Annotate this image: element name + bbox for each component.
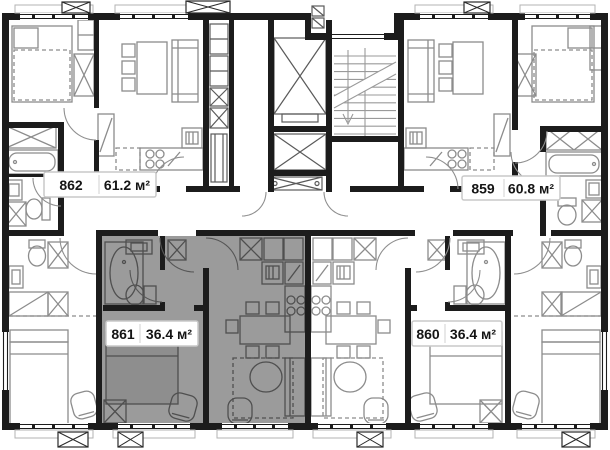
stove-icon <box>312 296 330 315</box>
window <box>2 332 9 390</box>
armchair-icon <box>69 389 99 420</box>
bed-icon <box>542 330 600 424</box>
dining-table-icon <box>326 302 390 358</box>
coffee-table-icon <box>323 358 383 418</box>
unit-label-862[interactable]: 862 61.2 м² <box>44 172 156 197</box>
door-arc <box>324 192 348 216</box>
door-arc <box>64 108 96 140</box>
toilet-icon <box>454 285 484 305</box>
unit-label-861[interactable]: 861 36.4 м² <box>106 321 198 346</box>
unit-area: 36.4 м² <box>450 326 496 342</box>
sink-icon <box>586 180 602 198</box>
washer-icon <box>582 200 602 222</box>
kitchen-cabinets-icon <box>313 238 352 260</box>
stairs-icon <box>334 48 396 136</box>
vent-shaft-icon <box>58 432 88 447</box>
sofa-icon <box>408 40 434 102</box>
window <box>420 13 488 20</box>
wardrobe-icon <box>74 54 94 96</box>
fridge-icon <box>182 128 202 148</box>
window <box>222 423 288 430</box>
wardrobe-icon <box>354 238 376 260</box>
unit-number: 860 <box>416 326 440 342</box>
window <box>522 423 590 430</box>
unit-label-860[interactable]: 860 36.4 м² <box>412 321 502 346</box>
unit-area: 60.8 м² <box>508 181 554 197</box>
armchair-icon <box>334 362 366 392</box>
vent-shaft-icon <box>118 432 143 447</box>
bed-icon <box>10 330 68 424</box>
bed-icon <box>12 26 72 102</box>
door-arc <box>376 238 408 270</box>
vent-shaft-icon <box>562 432 590 447</box>
window <box>120 13 188 20</box>
unit-number: 862 <box>59 177 83 193</box>
elevator-icon <box>274 38 326 122</box>
window <box>420 423 488 430</box>
sink-icon <box>587 266 601 288</box>
walls <box>2 13 608 430</box>
vent-shaft-icon <box>357 432 383 447</box>
floor-plan: 862 61.2 м² 859 60.8 м² 861 36.4 м² 860 … <box>0 0 610 450</box>
kitchen-counter-icon <box>404 114 510 170</box>
wardrobe-icon <box>542 242 562 316</box>
vent-shaft-icon <box>464 2 490 13</box>
apartment-far-left[interactable] <box>9 240 99 424</box>
window <box>318 423 386 430</box>
lobby-bench-icon <box>270 177 322 190</box>
window <box>525 13 590 20</box>
linen-closet-icon <box>6 126 56 148</box>
unit-label-859[interactable]: 859 60.8 м² <box>462 176 560 200</box>
stove-icon <box>146 150 164 168</box>
stove-icon <box>448 150 466 168</box>
storage-icon <box>561 292 601 316</box>
chair-icon <box>364 398 388 424</box>
wardrobe-icon <box>48 242 68 316</box>
storage-icon <box>9 292 48 316</box>
bathtub-icon <box>546 152 602 176</box>
door-arc <box>242 192 266 216</box>
vent-shaft-icon <box>312 6 324 28</box>
elevator-icon <box>274 134 326 170</box>
apartment-far-right[interactable] <box>511 240 601 424</box>
unit-number: 859 <box>471 181 495 197</box>
toilet-icon <box>565 240 582 266</box>
window <box>118 423 190 430</box>
toilet-icon <box>558 198 576 225</box>
dresser-icon <box>78 20 94 50</box>
washer-icon <box>428 240 446 260</box>
dining-table-icon <box>122 42 167 94</box>
bed-icon <box>532 26 594 102</box>
unit-area: 36.4 м² <box>146 326 192 342</box>
dining-table-icon <box>439 42 483 94</box>
unit-area: 61.2 м² <box>104 177 150 193</box>
sofa-icon <box>172 40 198 102</box>
floor-plan-canvas: 862 61.2 м² 859 60.8 м² 861 36.4 м² 860 … <box>0 0 610 450</box>
bathtub-icon <box>6 150 58 174</box>
storage-closets-icon <box>210 24 228 182</box>
fridge-icon <box>333 262 354 284</box>
window <box>601 332 608 390</box>
window <box>332 33 384 40</box>
window <box>20 13 88 20</box>
fridge-icon <box>406 128 426 148</box>
vent-shaft-icon <box>186 1 230 13</box>
armchair-icon <box>511 389 541 420</box>
unit-number: 861 <box>111 326 135 342</box>
toilet-icon <box>29 240 46 266</box>
sofa-icon <box>311 358 331 416</box>
window <box>20 423 88 430</box>
sink-icon <box>9 266 23 288</box>
vent-shaft-icon <box>62 2 90 13</box>
